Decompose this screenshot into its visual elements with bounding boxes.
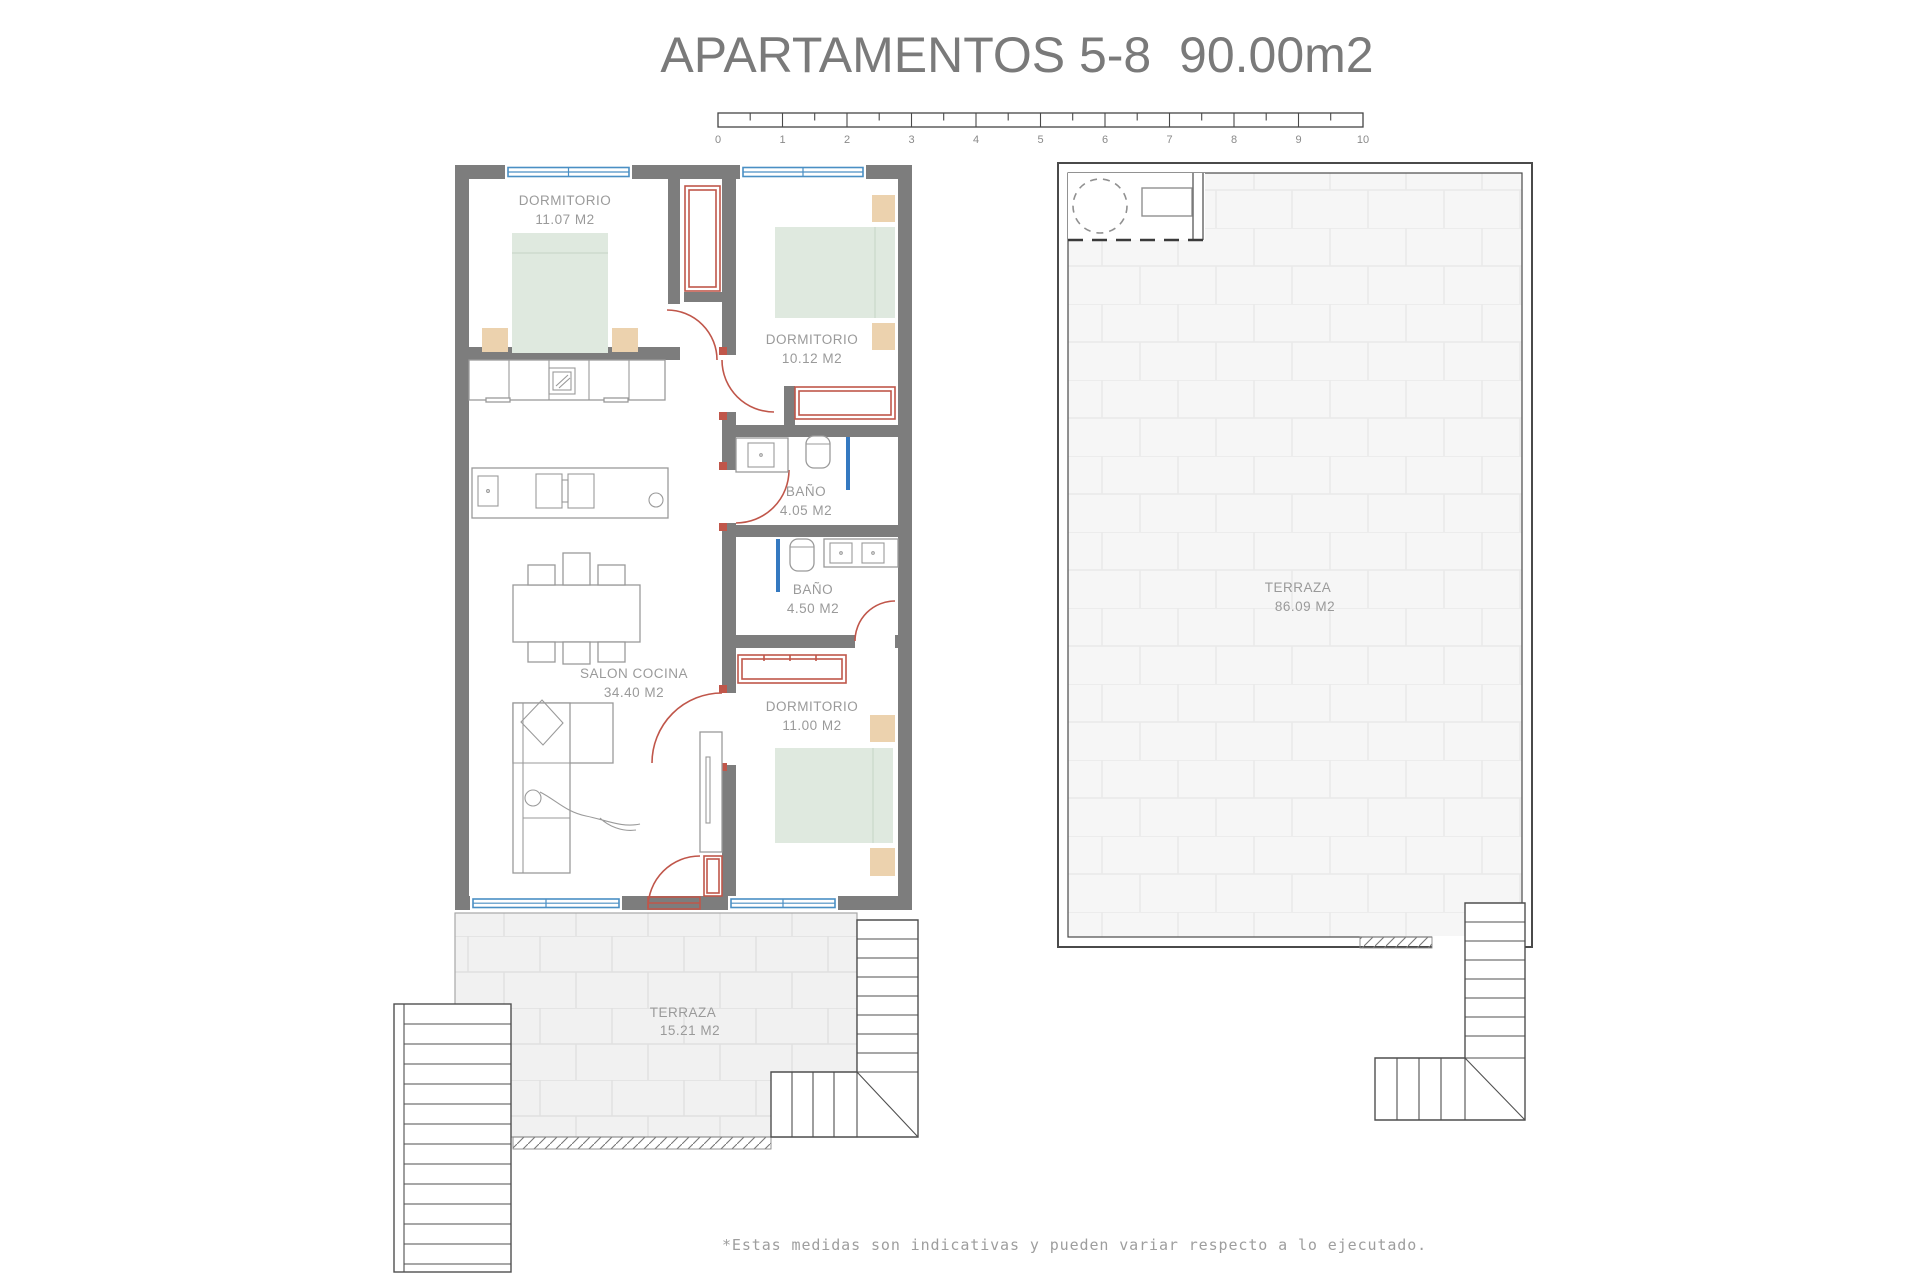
bathroom1	[736, 436, 848, 490]
nightstand	[872, 323, 895, 350]
room-label-bedroom1-area: 11.07 M2	[535, 212, 594, 227]
room-label-bedroom2-name: DORMITORIO	[766, 332, 859, 347]
room-label-bedroom1-name: DORMITORIO	[519, 193, 612, 208]
room-label-solarium-name: TERRAZA	[1265, 580, 1332, 595]
room-label-bath2-name: BAÑO	[793, 582, 833, 597]
scale-tick-5: 5	[1037, 134, 1043, 146]
toilet-icon	[790, 539, 814, 571]
room-label-salon-area: 34.40 M2	[604, 685, 664, 700]
room-label-solarium-area: 86.09 M2	[1275, 599, 1335, 614]
wardrobe-salon	[704, 856, 722, 896]
wardrobe-bedroom3	[738, 655, 846, 683]
wall-opening	[1432, 936, 1465, 948]
room-label-bath1-name: BAÑO	[786, 484, 826, 499]
room-label-salon-name: SALON COCINA	[580, 666, 688, 681]
scale-bar-numbers: 0 1 2 3 4 5 6 7 8 9 10	[715, 134, 1369, 146]
tv-unit	[700, 732, 722, 852]
window-bedroom3	[728, 896, 838, 910]
kitchen-counter	[469, 360, 665, 402]
window-salon	[470, 896, 622, 910]
room-label-bedroom3-area: 11.00 M2	[782, 718, 841, 733]
kitchen-island	[472, 468, 668, 518]
scale-tick-0: 0	[715, 134, 721, 146]
footnote-line-es: *Estas medidas son indicativas y pueden …	[722, 1235, 1477, 1256]
scale-tick-3: 3	[908, 134, 914, 146]
equipment-box	[1142, 188, 1192, 216]
floor-plan-drawing: 0 1 2 3 4 5 6 7 8 9 10	[0, 0, 1920, 1280]
nightstand	[612, 328, 638, 352]
bed-bedroom2	[775, 195, 895, 350]
utility-enclosure	[1068, 173, 1205, 240]
room-label-bedroom2-area: 10.12 M2	[782, 351, 842, 366]
room-label-terrace-area: 15.21 M2	[660, 1023, 720, 1038]
window-bedroom1	[505, 165, 632, 179]
bed-bedroom1	[482, 233, 638, 353]
toilet-icon	[806, 436, 830, 468]
scale-tick-2: 2	[844, 134, 850, 146]
wardrobe-hall	[685, 186, 720, 291]
dining-table	[513, 553, 640, 664]
nightstand	[872, 195, 895, 222]
room-label-bath2-area: 4.50 M2	[787, 601, 839, 616]
wardrobe-bedroom2	[795, 387, 895, 419]
nightstand	[482, 328, 508, 352]
room-label-bedroom3-name: DORMITORIO	[766, 699, 859, 714]
scale-tick-7: 7	[1166, 134, 1172, 146]
scale-tick-1: 1	[779, 134, 785, 146]
room-label-bath1-area: 4.05 M2	[780, 503, 832, 518]
staircase-left	[394, 1004, 511, 1272]
window-bedroom2	[740, 165, 866, 179]
scale-tick-8: 8	[1231, 134, 1237, 146]
kitchen	[469, 360, 668, 664]
sofa	[513, 700, 613, 873]
solarium-plan	[1058, 163, 1532, 1120]
living-room	[513, 700, 722, 873]
scale-bar: 0 1 2 3 4 5 6 7 8 9 10	[715, 113, 1369, 146]
scale-tick-6: 6	[1102, 134, 1108, 146]
nightstand	[870, 848, 895, 876]
bed-bedroom3	[775, 715, 895, 876]
terrace-edge-hatch	[1360, 937, 1432, 948]
terrace-edge-hatch	[513, 1137, 771, 1149]
tank-icon	[1073, 179, 1127, 233]
scale-tick-9: 9	[1295, 134, 1301, 146]
nightstand	[870, 715, 895, 742]
scale-tick-10: 10	[1357, 134, 1369, 146]
room-label-terrace-name: TERRAZA	[650, 1005, 717, 1020]
footnote: *Estas medidas son indicativas y pueden …	[722, 1193, 1477, 1280]
floorplan-page: APARTAMENTOS 5-8 90.00m2 0 1 2	[0, 0, 1920, 1280]
scale-tick-4: 4	[973, 134, 979, 146]
